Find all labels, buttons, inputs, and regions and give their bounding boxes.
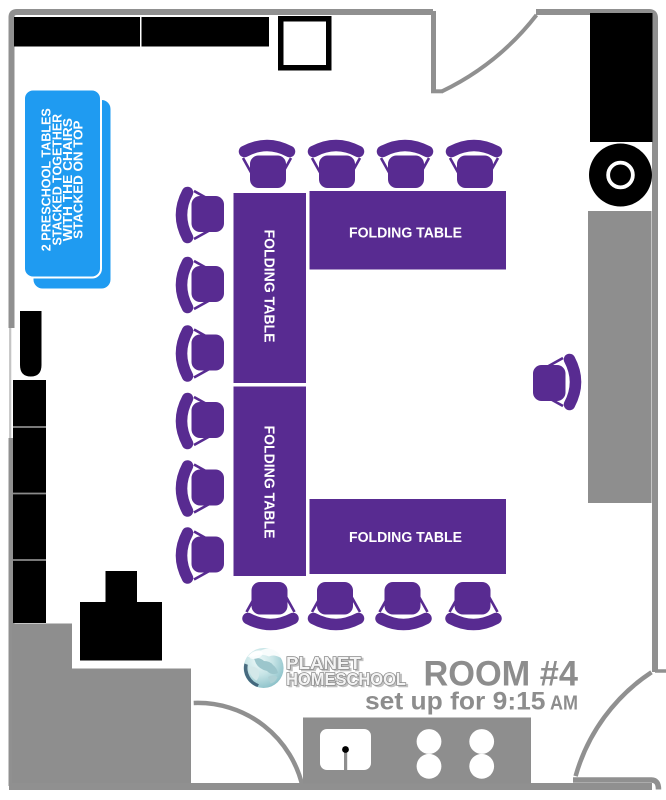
svg-text:FOLDING TABLE: FOLDING TABLE <box>261 230 277 343</box>
svg-text:set up for 9:15: set up for 9:15 <box>365 688 546 716</box>
svg-text:FOLDING TABLE: FOLDING TABLE <box>349 225 462 241</box>
svg-text:STACKED ON TOP: STACKED ON TOP <box>71 120 86 239</box>
svg-text:AM: AM <box>550 693 578 715</box>
svg-text:FOLDING TABLE: FOLDING TABLE <box>261 426 277 539</box>
svg-text:FOLDING TABLE: FOLDING TABLE <box>349 530 462 546</box>
svg-text:HOMESCHOOL: HOMESCHOOL <box>286 669 406 689</box>
